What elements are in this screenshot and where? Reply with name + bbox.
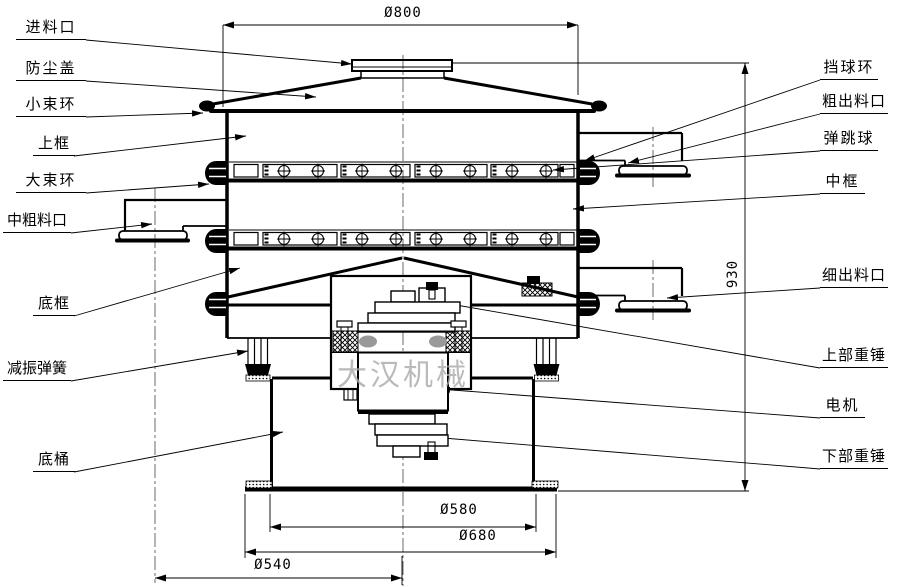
label-motor: 电机	[820, 396, 865, 418]
label-lower-weight: 下部重锤	[820, 447, 888, 469]
label-upper-frame: 上框	[33, 134, 75, 156]
label-middle-frame: 中框	[820, 172, 865, 194]
dim-outlet-circle: Ø540	[233, 557, 313, 573]
label-bouncing-ball: 弹跳球	[820, 129, 878, 151]
label-upper-weight: 上部重锤	[820, 346, 888, 368]
label-coarse-outlet: 粗出料口	[820, 92, 888, 114]
technical-drawing-vibrating-sieve: 大汉机械 进料口 防尘盖 小束环 上框 大束环 中粗料口 底框 减振弹簧 底桶 …	[0, 0, 897, 587]
label-ball-stop-ring: 挡球环	[820, 58, 878, 80]
dim-top-diameter: Ø800	[363, 5, 443, 21]
label-damping-spring: 减振弹簧	[3, 359, 71, 381]
drawing-canvas: 大汉机械	[0, 0, 897, 587]
dim-base-diameter: Ø680	[438, 528, 518, 544]
label-mid-coarse-outlet: 中粗料口	[3, 211, 71, 233]
label-dust-cover: 防尘盖	[16, 59, 86, 81]
label-feed-inlet: 进料口	[16, 18, 86, 40]
label-fine-outlet: 细出料口	[820, 266, 888, 288]
label-large-clamp-ring: 大束环	[16, 171, 86, 193]
dim-height: 930	[725, 254, 741, 294]
label-small-clamp-ring: 小束环	[16, 95, 86, 117]
watermark-text: 大汉机械	[337, 358, 469, 393]
dim-mid-diameter: Ø580	[419, 502, 499, 518]
label-bottom-frame: 底框	[33, 294, 75, 316]
label-bottom-barrel: 底桶	[33, 450, 75, 472]
